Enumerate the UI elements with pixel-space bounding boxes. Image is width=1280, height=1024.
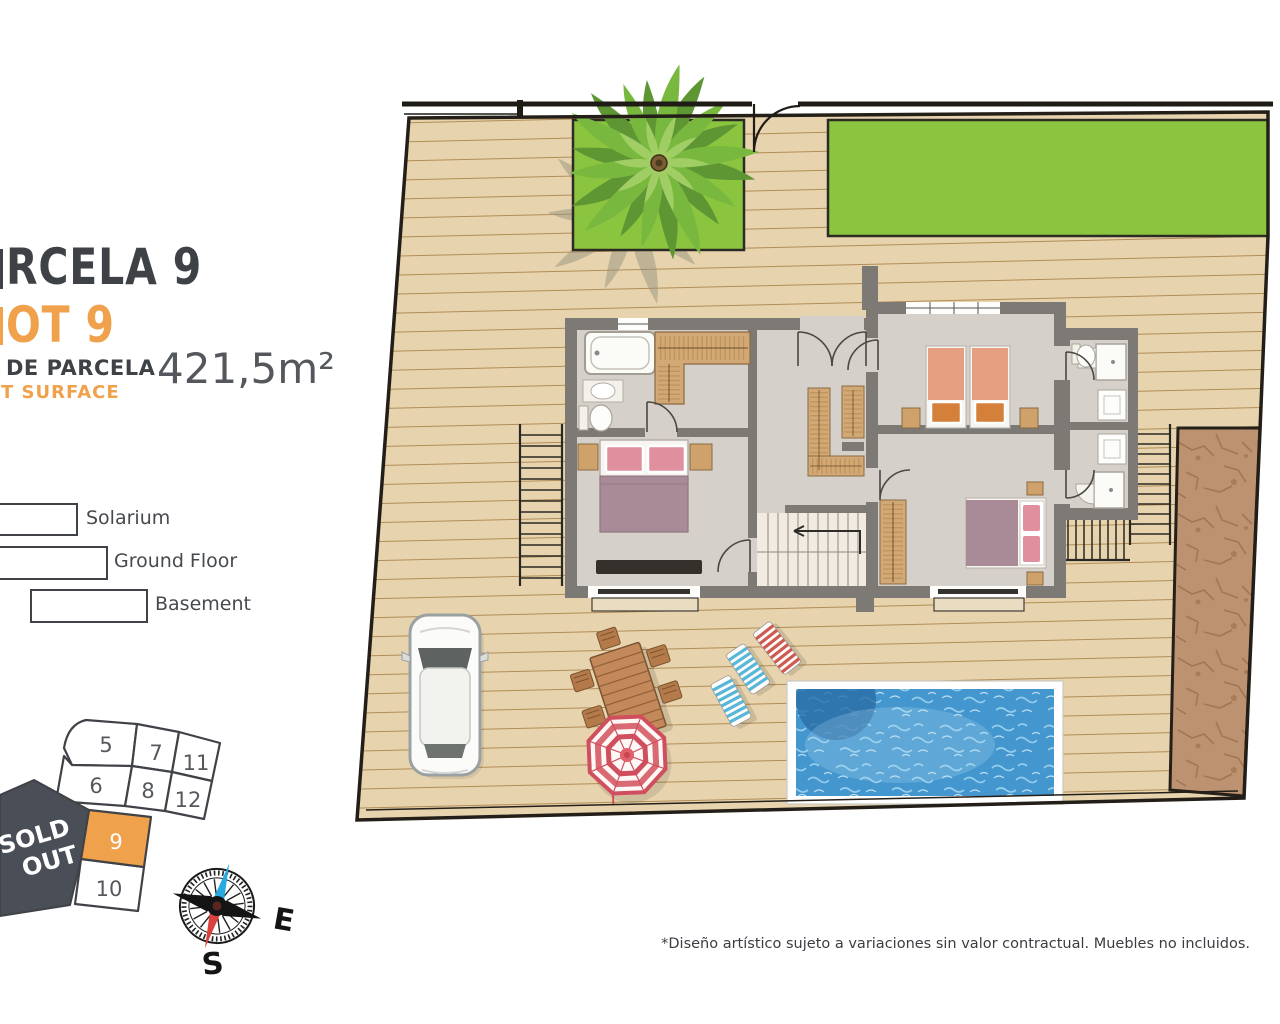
nightstand [690,444,712,470]
lot-number-8: 8 [141,779,154,803]
compass-east-label: E [271,901,297,939]
washbasin [1098,434,1126,464]
terrace-step-right [934,598,1024,611]
nightstand [1020,408,1038,428]
pillow [1023,536,1040,562]
compass-rose: E S [161,851,297,983]
disclaimer-text: *Diseño artístico sujeto a variaciones s… [661,936,1250,952]
lot-number-5: 5 [99,733,112,757]
car-rear-window [424,744,466,758]
car-roof [420,668,470,746]
lot-number-9: 9 [109,830,122,854]
tv-bench [596,560,702,574]
car [402,615,488,779]
compass-south-label: S [200,946,225,983]
site-plan: 5 7 11 6 8 12 9 10 SOLD OUT [0,0,1280,1024]
bed-cover [928,348,964,400]
floorplan-page: RCELA 9 OT 9 DE PARCELA T SURFACE 421,5m… [0,0,1280,1024]
nightstand [902,408,920,428]
lot-number-7: 7 [149,741,162,765]
nightstand [578,444,598,470]
lot-number-6: 6 [89,774,102,798]
washbasin [1098,390,1126,420]
pillow [606,446,643,472]
pillow [648,446,685,472]
pillow [931,402,961,423]
lot-number-11: 11 [183,751,210,775]
toilet-tank [579,406,588,430]
nightstand [1027,572,1043,585]
blanket [966,500,1018,566]
lot-number-12: 12 [175,788,202,812]
wardrobe-bedroom3 [880,500,906,584]
gate-post [517,100,523,118]
terrace-step-left [592,598,698,611]
lawn [828,120,1268,236]
wall-stub-bottom [856,598,874,612]
swimming-pool [787,660,1063,804]
pillow [1023,505,1040,531]
lot-number-10: 10 [96,877,123,901]
nightstand [1027,482,1043,495]
interior-stairs [757,513,866,586]
toilet [590,405,612,431]
bed-cover [972,348,1008,400]
wall-stub-top [862,266,878,310]
pillow [975,402,1005,423]
wall-bath-divider [1070,422,1128,430]
